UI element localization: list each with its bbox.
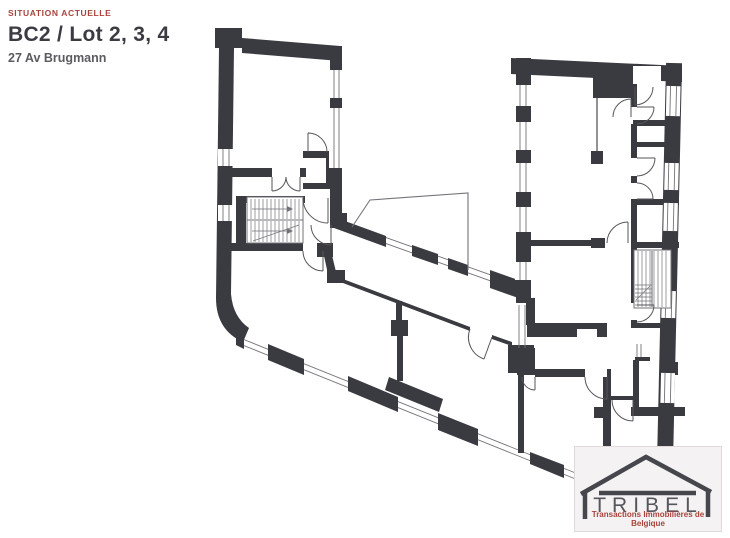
plan-header: SITUATION ACTUELLE BC2 / Lot 2, 3, 4 27 … <box>8 8 169 65</box>
address-label: 27 Av Brugmann <box>8 51 169 65</box>
status-label: SITUATION ACTUELLE <box>8 8 169 18</box>
logo-card: TRIBEL Transactions Immobilières de Belg… <box>574 446 722 532</box>
structural-column <box>591 96 603 164</box>
page-title: BC2 / Lot 2, 3, 4 <box>8 23 169 47</box>
floor-plan-page: SITUATION ACTUELLE BC2 / Lot 2, 3, 4 27 … <box>0 0 730 538</box>
logo-tagline: Transactions Immobilières de Belgique <box>575 510 721 528</box>
left-staircase <box>247 197 303 243</box>
right-staircase <box>634 250 671 308</box>
left-wing-walls <box>215 28 347 342</box>
diagonal-wing-walls <box>334 217 534 381</box>
